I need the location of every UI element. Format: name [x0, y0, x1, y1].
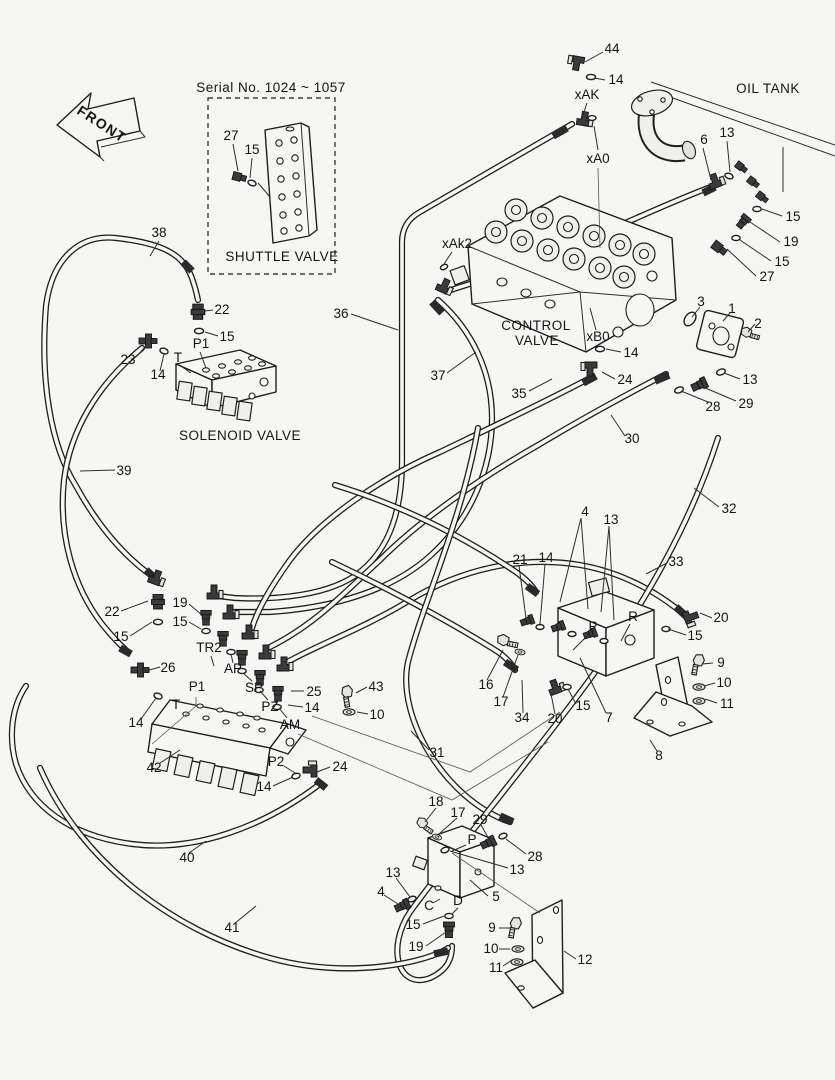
callout-15: 15 [113, 629, 128, 644]
washer-11-br8 [693, 698, 705, 704]
bolt-9-br8 [691, 653, 705, 676]
callout-11: 11 [720, 696, 734, 711]
bracket-8 [634, 653, 712, 736]
callout-9: 9 [717, 655, 725, 670]
callout-25: 25 [306, 684, 321, 699]
callout-16: 16 [478, 677, 493, 692]
callout-34: 34 [514, 710, 530, 725]
o-ring-14-top [159, 347, 169, 355]
port-p2: P2 [268, 754, 285, 769]
control-valve-label-1: CONTROL [501, 318, 571, 333]
port-p1-top: P1 [193, 336, 210, 351]
o-ring-15-inset [247, 179, 257, 187]
callout-17: 17 [493, 694, 508, 709]
hydraulic-piping-diagram: FRONT Serial No. 1024 ~ 1057 SHUTTLE VAL… [0, 0, 835, 1080]
callout-33: 33 [668, 554, 683, 569]
callout-3: 3 [697, 294, 705, 309]
o-ring-14-p2 [291, 772, 301, 779]
o-ring-xa0 [588, 116, 596, 121]
plug-27-inset [232, 171, 247, 182]
callout-42: 42 [146, 760, 161, 775]
washer-10-br8 [693, 684, 705, 690]
callout-32: 32 [721, 501, 736, 516]
callout-13: 13 [603, 512, 618, 527]
port-ap: AP [224, 661, 242, 676]
port-t-mid: T [172, 697, 180, 712]
callout-9: 9 [488, 920, 496, 935]
port-pz: PZ [261, 699, 278, 714]
callout-28: 28 [527, 849, 542, 864]
callout-43: 43 [368, 679, 383, 694]
callout-1: 1 [728, 301, 736, 316]
port-p-valve7: P [588, 619, 597, 634]
callout-17: 17 [450, 805, 465, 820]
o-ring-15-mid [154, 619, 163, 624]
callout-15: 15 [687, 628, 702, 643]
shuttle-valve-label: SHUTTLE VALVE [225, 249, 338, 264]
callout-4: 4 [377, 884, 385, 899]
port-sp: SP [245, 680, 263, 695]
port-p1-mid: P1 [189, 679, 206, 694]
port-xb0: xB0 [586, 329, 609, 344]
bolt-43 [341, 685, 355, 708]
union-26 [131, 663, 149, 677]
callout-15: 15 [405, 917, 420, 932]
nipple-19-tank [735, 213, 752, 230]
callout-22: 22 [104, 604, 119, 619]
port-xak: xAK [575, 87, 600, 102]
nipple-29-flange [690, 377, 709, 394]
pilot-manifold-42 [148, 700, 306, 795]
o-ring-13-tank [724, 172, 734, 180]
callout-5: 5 [492, 889, 500, 904]
washer-10-br12 [512, 946, 524, 952]
callout-11: 11 [489, 960, 503, 975]
tank-plug-2 [746, 176, 760, 189]
callout-14: 14 [538, 550, 554, 565]
callout-23: 23 [120, 352, 135, 367]
parts-diagram-page: FRONT Serial No. 1024 ~ 1057 SHUTTLE VAL… [0, 0, 835, 1080]
callout-35: 35 [511, 386, 526, 401]
port-r-valve7: R [628, 609, 638, 624]
callout-20: 20 [713, 610, 728, 625]
port-d: D [453, 893, 463, 908]
callout-15: 15 [219, 329, 234, 344]
washer-11-br12 [511, 959, 523, 965]
nipple-19-d [444, 922, 455, 938]
o-ring-15-v7 [563, 684, 571, 689]
o-ring-14-t [153, 692, 163, 700]
o-ring-13-flange [716, 368, 726, 376]
callout-19: 19 [783, 234, 798, 249]
callout-2: 2 [754, 316, 762, 331]
shuttle-valve-inset: Serial No. 1024 ~ 1057 SHUTTLE VALVE [196, 80, 345, 274]
callout-6: 6 [700, 132, 708, 147]
bracket-12 [505, 900, 563, 1008]
bolt-18 [415, 816, 436, 835]
o-ring-15-d [445, 913, 453, 918]
callout-41: 41 [224, 920, 239, 935]
callout-10: 10 [716, 675, 731, 690]
callout-24: 24 [332, 759, 348, 774]
port-xa0: xA0 [586, 151, 609, 166]
callout-14: 14 [304, 700, 320, 715]
fitting-22-top [191, 304, 205, 319]
callout-36: 36 [333, 306, 348, 321]
port-xak2: xAk2 [442, 236, 472, 251]
tank-plug-1 [734, 161, 748, 174]
callout-38: 38 [151, 225, 166, 240]
callout-22: 22 [214, 302, 229, 317]
callout-10: 10 [483, 941, 498, 956]
callout-18: 18 [428, 794, 443, 809]
callout-21: 21 [512, 552, 527, 567]
solenoid-valve-body: SOLENOID VALVE [176, 350, 301, 443]
callout-37: 37 [430, 368, 445, 383]
callout-7: 7 [605, 710, 613, 725]
o-ring-xak2 [440, 263, 449, 271]
oil-tank: OIL TANK [629, 81, 835, 256]
callout-19: 19 [408, 939, 423, 954]
port-t-top: T [174, 350, 182, 365]
callout-27: 27 [759, 269, 774, 284]
callout-14: 14 [128, 715, 144, 730]
port-tr2: TR2 [196, 640, 222, 655]
callout-14: 14 [608, 72, 624, 87]
callout-30: 30 [624, 431, 639, 446]
callout-13: 13 [742, 372, 757, 387]
callout-15: 15 [575, 698, 590, 713]
serial-note: Serial No. 1024 ~ 1057 [196, 80, 345, 95]
elbow-24-p2 [303, 761, 317, 777]
callout-29: 29 [738, 396, 753, 411]
callout-40: 40 [179, 850, 194, 865]
callout-15: 15 [172, 614, 187, 629]
callout-12: 12 [577, 952, 592, 967]
callout-20: 20 [547, 711, 562, 726]
callout-10: 10 [369, 707, 384, 722]
callout-8: 8 [655, 748, 663, 763]
callout-26: 26 [160, 660, 175, 675]
tank-plug-3 [755, 191, 769, 204]
solenoid-valve-label: SOLENOID VALVE [179, 428, 301, 443]
washer-10-manifold [343, 709, 355, 715]
callout-44: 44 [604, 41, 620, 56]
callout-27: 27 [223, 128, 238, 143]
callout-14: 14 [150, 367, 166, 382]
oil-tank-label: OIL TANK [736, 81, 800, 96]
callout-39: 39 [116, 463, 131, 478]
port-c: C [424, 898, 434, 913]
port-am: AM [280, 717, 300, 732]
callout-15: 15 [785, 209, 800, 224]
o-ring-15-tank-b [732, 235, 740, 240]
fitting-22-mid [152, 595, 165, 610]
callout-4: 4 [581, 504, 589, 519]
callout-13: 13 [719, 125, 734, 140]
o-ring-15-tank-a [753, 206, 761, 211]
bolt-16 [496, 633, 519, 648]
port-p-valve5: P [467, 832, 476, 847]
plug-27-tank [711, 240, 728, 256]
shuttle-valve-body [265, 123, 317, 243]
front-arrow: FRONT [57, 93, 145, 161]
callout-24: 24 [617, 372, 633, 387]
callout-29: 29 [472, 812, 487, 827]
o-ring-15-top [195, 328, 204, 333]
control-valve-label-2: VALVE [515, 333, 559, 348]
callout-15: 15 [774, 254, 789, 269]
elbow-44 [567, 55, 585, 72]
callout-13: 13 [509, 862, 524, 877]
callout-13: 13 [385, 865, 400, 880]
callout-19: 19 [172, 595, 187, 610]
o-ring-14-xb0 [596, 346, 605, 351]
o-ring-28-flange [674, 386, 684, 394]
callout-14: 14 [256, 779, 272, 794]
o-ring-14-xak [587, 74, 596, 79]
callout-31: 31 [429, 745, 444, 760]
washer-17-v7 [515, 648, 526, 655]
callout-14: 14 [623, 345, 639, 360]
callout-28: 28 [705, 399, 720, 414]
callout-15: 15 [244, 142, 259, 157]
